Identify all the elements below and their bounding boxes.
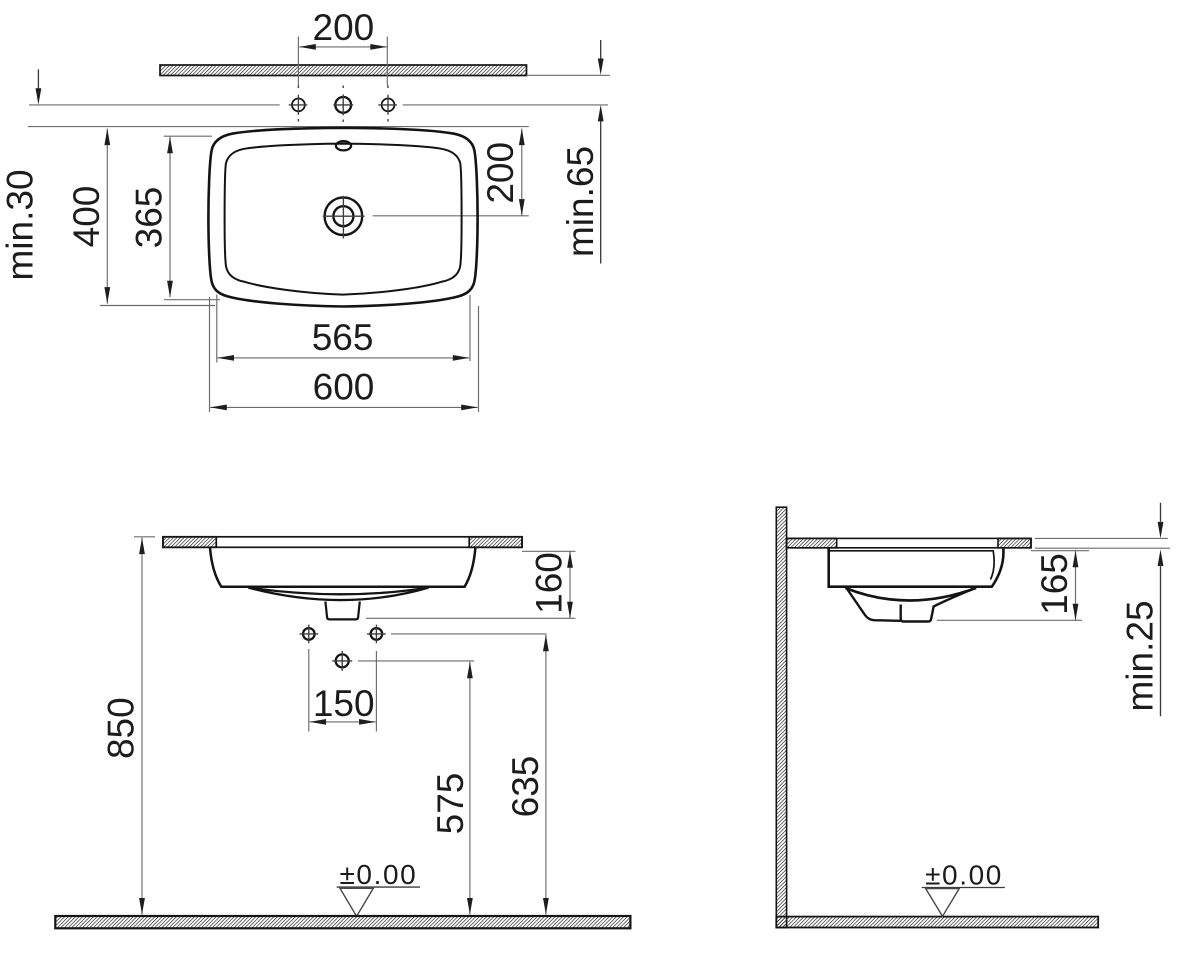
svg-text:400: 400: [66, 186, 107, 248]
svg-text:635: 635: [505, 756, 546, 818]
svg-text:min.25: min.25: [1120, 600, 1161, 711]
svg-text:565: 565: [312, 317, 374, 358]
svg-text:850: 850: [101, 697, 142, 759]
svg-text:min.30: min.30: [0, 169, 41, 280]
svg-text:200: 200: [480, 142, 521, 204]
svg-text:160: 160: [529, 552, 570, 614]
svg-text:150: 150: [313, 683, 375, 724]
svg-text:±0.00: ±0.00: [339, 859, 417, 890]
svg-text:200: 200: [313, 7, 375, 48]
svg-text:600: 600: [313, 367, 375, 408]
svg-text:±0.00: ±0.00: [925, 860, 1003, 891]
svg-text:365: 365: [129, 187, 170, 249]
svg-text:575: 575: [430, 773, 471, 835]
svg-text:min.65: min.65: [560, 146, 601, 257]
svg-text:165: 165: [1034, 553, 1075, 615]
